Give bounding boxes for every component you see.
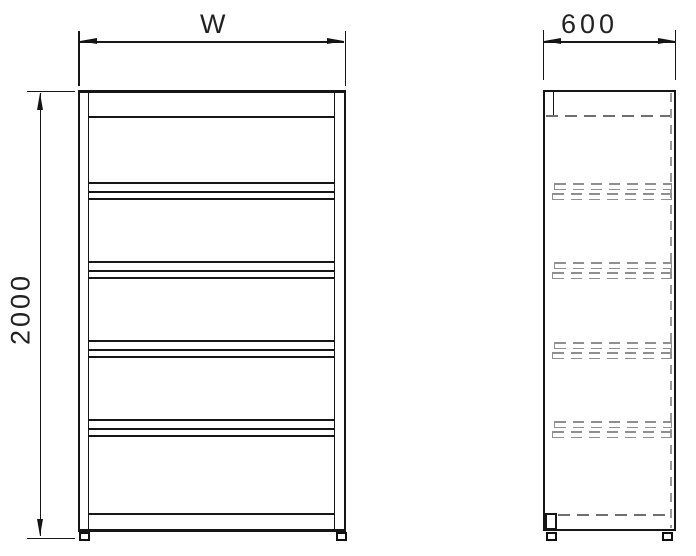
dim-arrow-down-icon [37,519,43,536]
drawing-canvas: W 600 2000 [0,0,696,556]
extension-line-bottom [27,538,75,540]
dimension-line [40,93,42,536]
height-dimension: 2000 [0,0,696,556]
extension-line-top [27,91,75,93]
height-dimension-label: 2000 [8,273,35,345]
dim-arrow-up-icon [37,93,43,110]
